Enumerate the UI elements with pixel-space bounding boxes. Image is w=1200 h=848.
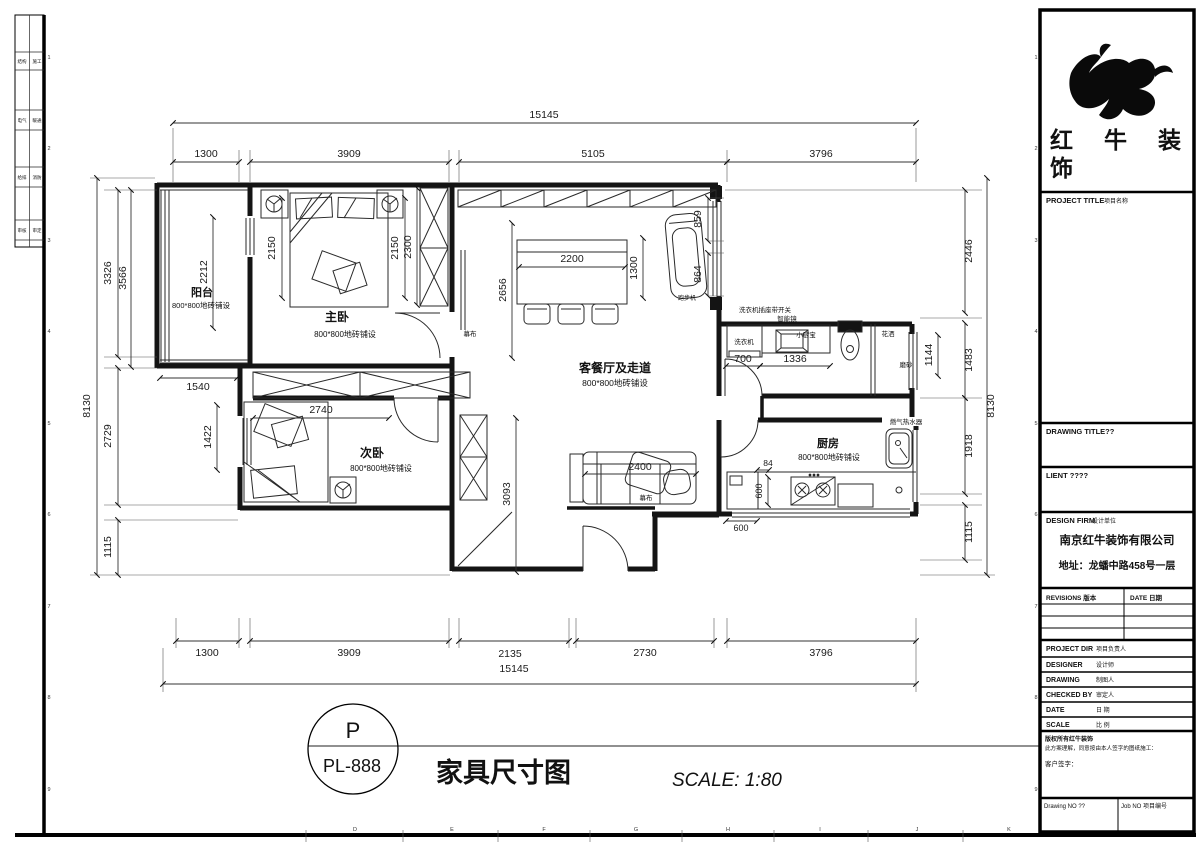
grid-number: 5 (47, 421, 50, 427)
dim-text: 3796 (809, 148, 833, 160)
label-washer: 洗衣机 (734, 337, 754, 346)
company-address: 地址：龙蟠中路458号一层 (1059, 559, 1176, 572)
room-tile-kitchen: 800*800地砖铺设 (798, 452, 860, 462)
column-block (710, 297, 722, 310)
meta-cn: 项目负责人 (1096, 645, 1126, 653)
page-title: 家具尺寸图 (436, 757, 571, 788)
drawing-title-label: DRAWING TITLE?? (1046, 427, 1115, 436)
drawing-sheet: 结构 施工 电气 暖通 给排 消防 审核 审定 1 2 3 4 5 6 7 8 … (0, 0, 1200, 848)
brand-name-top: 红 牛 装 (1050, 127, 1185, 153)
stamp-boxes: 结构 施工 电气 暖通 给排 消防 审核 审定 (15, 15, 44, 247)
dim-text: 1300 (194, 148, 218, 160)
dim-text: 2150 (266, 236, 278, 260)
meta-en: DRAWING (1046, 677, 1080, 684)
grid-letter: H (726, 827, 730, 833)
dim-text: 600 (733, 523, 748, 533)
label-washer-switch: 洗衣机插座带开关 (739, 305, 792, 314)
dim-text: 2446 (963, 239, 975, 263)
date-header: DATE 日期 (1130, 593, 1163, 602)
dim-text: 3566 (117, 266, 129, 290)
grid-number: 6 (1034, 512, 1037, 518)
dim-text: 2150 (389, 236, 401, 260)
dim-text: 1540 (186, 381, 210, 393)
entry-door (583, 526, 628, 571)
grid-letter: F (542, 827, 546, 833)
meta-en: CHECKED BY (1046, 692, 1093, 699)
stamp-label: 施工 (33, 58, 42, 65)
dim-text: 3909 (337, 647, 361, 659)
label-screen-living: 幕布 (464, 329, 478, 338)
dim-text: 3326 (102, 261, 114, 285)
label-treadmill: 跑步机 (678, 294, 696, 302)
room-name-balcony: 阳台 (191, 285, 213, 299)
project-title-cn: 项目名称 (1104, 197, 1128, 205)
dim-text: 1300 (628, 256, 640, 280)
dim-text: 2300 (402, 235, 414, 259)
room-name-master: 主卧 (325, 309, 349, 324)
room-name-kitchen: 厨房 (817, 436, 839, 450)
grid-letter: E (450, 827, 454, 833)
dim-text: 3796 (809, 647, 833, 659)
dim-text: 5105 (581, 148, 605, 160)
dim-text: 859 (692, 210, 704, 228)
label-screen-sofa: 幕布 (640, 493, 654, 502)
drawing-title-group: P PL-888 家具尺寸图 SCALE: 1:80 (308, 704, 1040, 794)
dim-text: 864 (692, 265, 704, 283)
meta-en: SCALE (1046, 722, 1070, 729)
room-tile-second: 800*800地砖铺设 (350, 463, 412, 473)
grid-number: 1 (1034, 55, 1037, 61)
meta-cn: 日 期 (1096, 706, 1110, 714)
grid-number: 2 (47, 146, 50, 152)
dimension-extension-lines (90, 128, 995, 692)
stamp-label: 结构 (18, 58, 27, 65)
company-name: 南京红牛装饰有限公司 (1060, 533, 1175, 547)
sofa (570, 451, 696, 504)
grid-number: 9 (1034, 787, 1037, 793)
dim-text: 700 (734, 353, 752, 365)
ref-number: PL-888 (323, 756, 381, 776)
title-block: 红 牛 装 饰 PROJECT TITLE 项目名称 DRAWING TITLE… (1040, 10, 1194, 832)
dim-text: 15145 (499, 663, 528, 675)
bath-counter-basin (762, 325, 830, 353)
room-tile-balcony: 800*800地砖铺设 (172, 300, 230, 310)
dim-text: 3093 (501, 482, 513, 506)
grid-letter: I (819, 827, 821, 833)
client-label: LIENT ???? (1046, 471, 1088, 480)
grid-number: 4 (47, 329, 50, 335)
meta-en: DESIGNER (1046, 662, 1083, 669)
brand-name-bottom: 饰 (1050, 155, 1073, 181)
revisions-header: REVISIONS 版本 (1046, 593, 1097, 602)
grid-number: 5 (1034, 421, 1037, 427)
second-bedroom-door (394, 398, 438, 442)
room-tile-master: 800*800地砖铺设 (314, 329, 376, 339)
dim-text: 15145 (529, 109, 558, 121)
kitchen-door (721, 420, 758, 457)
grid-number: 3 (47, 238, 50, 244)
kitchen-sink (886, 429, 912, 468)
label-frosted: 磨砂 (900, 360, 914, 369)
grid-number: 7 (47, 604, 50, 610)
dim-text: 600 (754, 483, 764, 498)
brand-logo-icon (1069, 44, 1173, 120)
design-firm-cn: 设计单位 (1092, 517, 1116, 525)
dim-text: 1115 (963, 521, 975, 543)
dim-text: 84 (763, 458, 773, 468)
job-no-label: Job NO 项目编号 (1121, 802, 1167, 810)
dim-text: 8130 (985, 394, 997, 418)
stamp-label: 电气 (18, 117, 27, 123)
dim-text: 8130 (81, 394, 93, 418)
dim-text: 1422 (202, 425, 214, 449)
meta-cn: 设计师 (1096, 661, 1114, 669)
stamp-label: 消防 (33, 174, 42, 181)
dim-text: 1115 (102, 536, 114, 558)
grid-number: 9 (47, 787, 50, 793)
grid-number: 8 (1034, 695, 1037, 701)
master-bed (290, 193, 388, 307)
sheet-frame: 结构 施工 电气 暖通 给排 消防 审核 审定 1 2 3 4 5 6 7 8 … (15, 15, 1196, 842)
dim-text: 2729 (102, 424, 114, 448)
grid-number: 3 (1034, 238, 1037, 244)
doors (394, 313, 762, 571)
dim-text: 2200 (560, 253, 584, 265)
grid-letter: G (634, 827, 638, 833)
dimension-texts: 15145 1300 3909 5105 3796 1300 3909 2135… (81, 109, 997, 675)
dim-text: 3909 (337, 148, 361, 160)
dim-text: 2400 (628, 461, 652, 473)
copyright-line1: 版权所有红牛装饰 (1044, 735, 1093, 743)
ref-zone: P (346, 718, 361, 743)
grid-number: 7 (1034, 604, 1037, 610)
grid-number: 8 (47, 695, 50, 701)
grid-number: 4 (1034, 329, 1037, 335)
meta-cn: 制图人 (1096, 676, 1114, 684)
dim-text: 2730 (633, 647, 657, 659)
floorplan-canvas: 结构 施工 电气 暖通 给排 消防 审核 审定 1 2 3 4 5 6 7 8 … (0, 0, 1200, 848)
meta-en: DATE (1046, 707, 1065, 714)
dim-text: 2656 (497, 278, 509, 302)
dim-text: 2135 (498, 648, 522, 660)
stamp-label: 审核 (18, 227, 27, 234)
dim-text: 1300 (195, 647, 219, 659)
label-smart-mirror: 智能镜 (777, 314, 797, 323)
grid-number: 2 (1034, 146, 1037, 152)
grid-letter: J (916, 827, 919, 833)
meta-en: PROJECT DIR (1046, 646, 1093, 653)
room-name-living: 客餐厅及走道 (578, 360, 651, 375)
master-door (395, 313, 440, 358)
shower-partition (871, 324, 875, 396)
stamp-label: 审定 (33, 227, 42, 234)
grid-number: 6 (47, 512, 50, 518)
label-gas-heater: 燃气热水器 (890, 417, 923, 426)
dim-text: 1144 (923, 344, 935, 367)
dim-text: 1336 (783, 353, 807, 365)
room-name-second: 次卧 (360, 445, 384, 460)
dim-text: 1483 (963, 348, 975, 372)
toilet (838, 321, 862, 360)
meta-cn: 比 例 (1096, 721, 1110, 729)
grid-number: 1 (47, 55, 50, 61)
project-title-label: PROJECT TITLE (1046, 196, 1104, 205)
label-mini-heater: 小厨宝 (796, 330, 816, 339)
copyright-line2: 此方案理解，同意按由本人签字的图纸施工： (1045, 744, 1157, 752)
meta-cn: 审定人 (1096, 691, 1114, 699)
grid-letter: K (1007, 827, 1011, 833)
grid-letter: D (353, 827, 357, 833)
drawing-no-label: Drawing NO ?? (1044, 804, 1086, 810)
dim-text: 2740 (309, 404, 333, 416)
dim-text: 1918 (963, 434, 975, 458)
room-tile-living: 800*800地砖铺设 (582, 378, 648, 388)
design-firm-label: DESIGN FIRM (1046, 516, 1095, 525)
dim-text: 2212 (198, 260, 210, 284)
gas-stove (791, 474, 835, 505)
stamp-label: 暖通 (33, 117, 42, 124)
scale-label: SCALE: 1:80 (672, 770, 782, 791)
stamp-label: 给排 (18, 174, 27, 181)
second-bed (244, 402, 356, 503)
client-signature-label: 客户签字： (1045, 759, 1078, 768)
label-shower: 花洒 (882, 329, 896, 338)
